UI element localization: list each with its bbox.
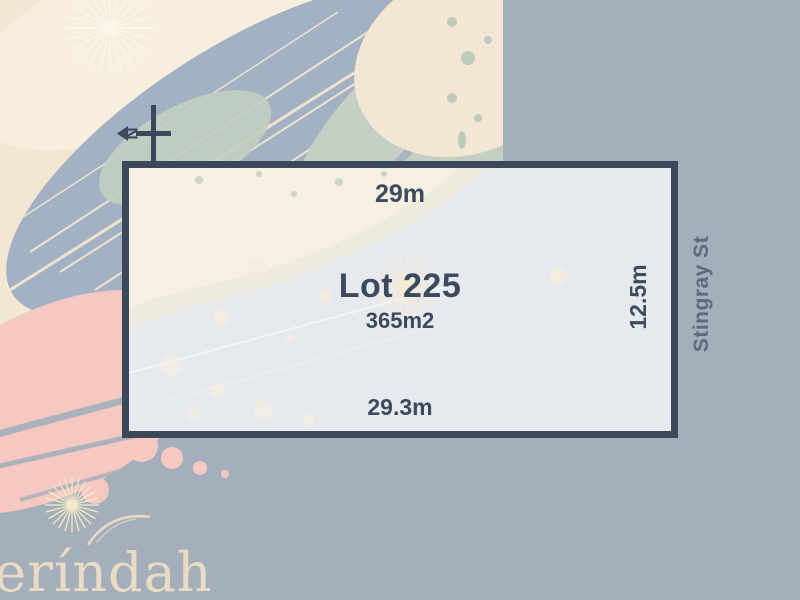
background-mask [503, 0, 800, 161]
leaf-flourish-icon [84, 509, 156, 551]
street-name-label: Stingray St [652, 244, 752, 344]
compass-north-label: N [123, 127, 142, 139]
lot-225-parcel: 29m Lot 225 365m2 29.3m 12.5m [122, 161, 678, 438]
lot-plan-image: N [0, 0, 800, 600]
lot-width-bottom-label: 29.3m [129, 394, 671, 421]
lot-width-top-label: 29m [129, 180, 671, 209]
